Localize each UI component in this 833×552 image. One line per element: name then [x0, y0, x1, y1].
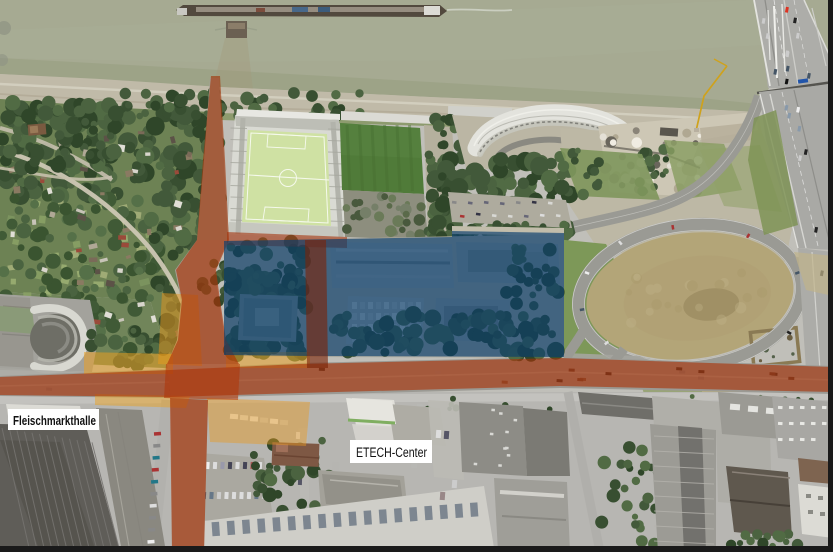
svg-text:ETECH-Center: ETECH-Center — [356, 445, 427, 460]
svg-text:Fleischmarkthalle: Fleischmarkthalle — [13, 413, 96, 428]
